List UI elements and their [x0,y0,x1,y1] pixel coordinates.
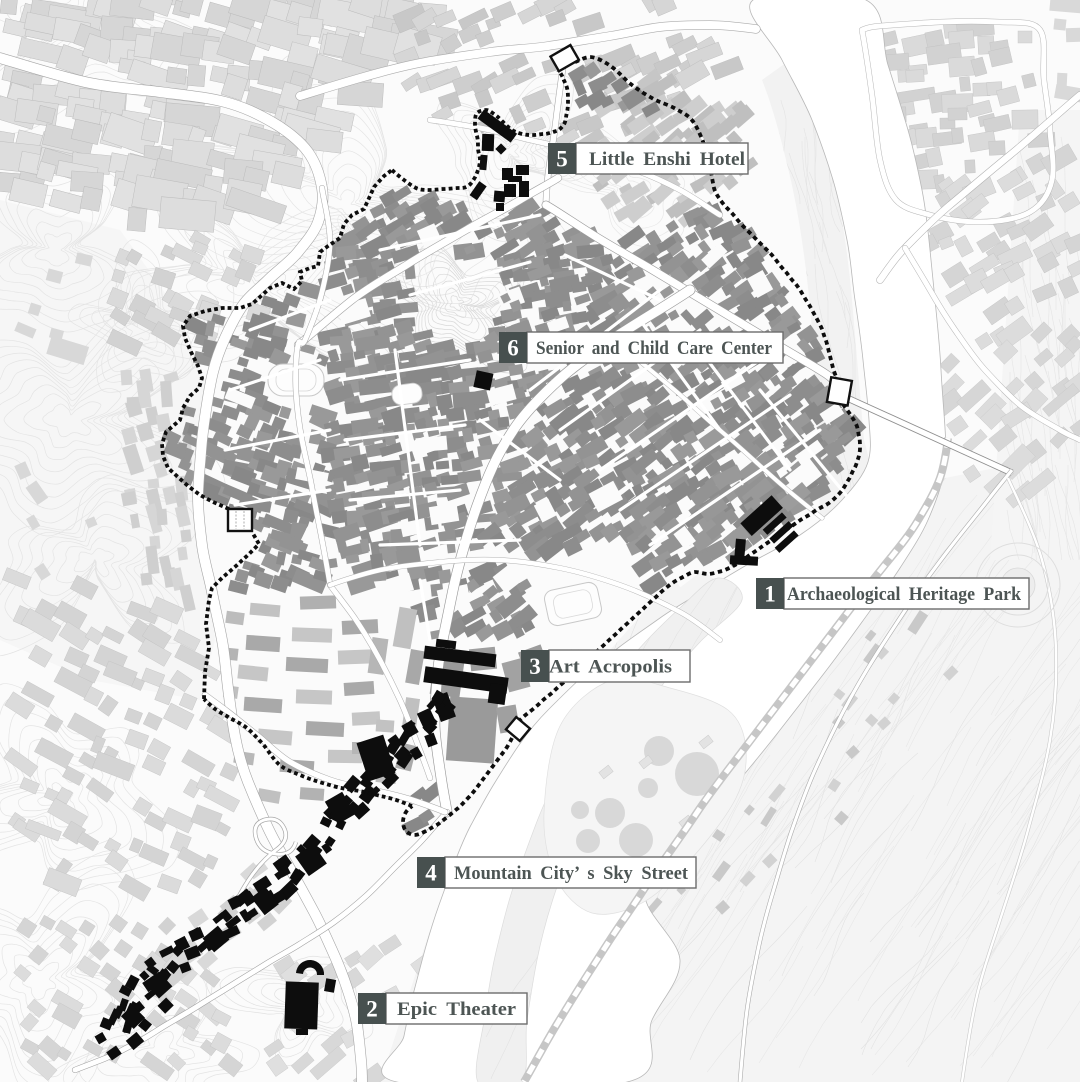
svg-text:5: 5 [556,147,568,172]
svg-text:Epic Theater: Epic Theater [397,1000,516,1020]
svg-text:2: 2 [366,997,378,1022]
svg-text:4: 4 [425,861,437,886]
svg-text:Mountain City’ s Sky Street: Mountain City’ s Sky Street [454,864,689,884]
svg-text:Art Acropolis: Art Acropolis [549,658,672,678]
svg-text:3: 3 [529,654,541,679]
svg-text:Senior and Child Care Center: Senior and Child Care Center [536,339,772,359]
svg-text:6: 6 [507,336,519,361]
svg-text:Little Enshi Hotel: Little Enshi Hotel [589,150,745,170]
svg-text:Archaeological Heritage Park: Archaeological Heritage Park [787,585,1022,605]
svg-text:1: 1 [764,582,776,607]
